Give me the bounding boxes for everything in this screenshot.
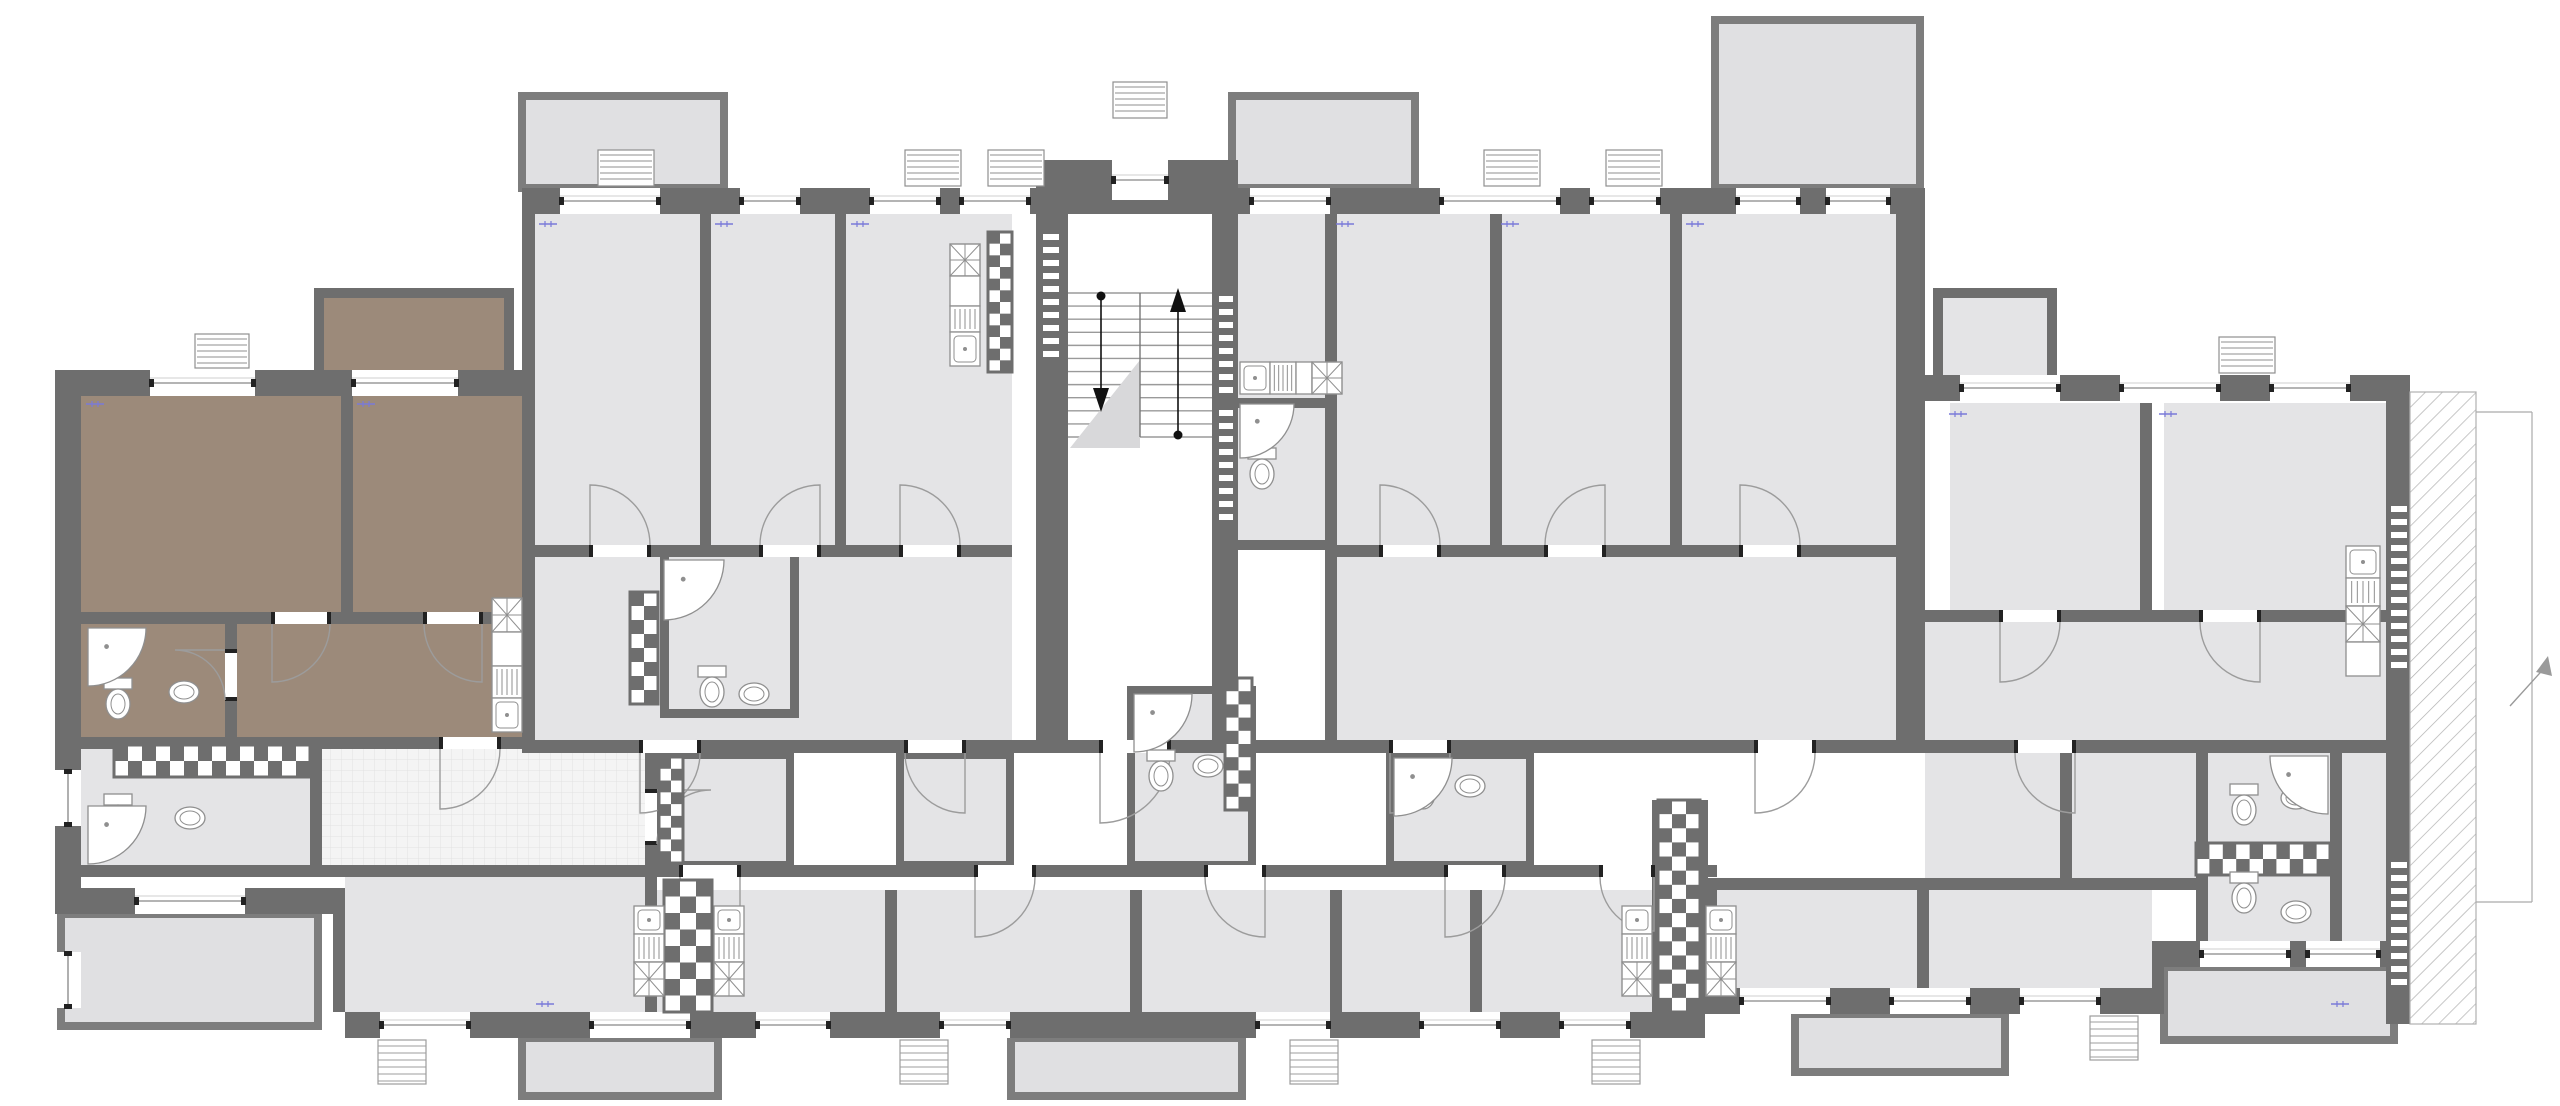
window (1589, 188, 1661, 214)
door-jamb (225, 697, 237, 701)
washbasin (1193, 755, 1223, 777)
wall-segment (1917, 890, 1929, 988)
wall-segment (504, 296, 514, 372)
shaft-cell (696, 946, 712, 963)
kitchen-counter (2346, 642, 2380, 676)
duct-rung (1219, 335, 1233, 341)
room (1717, 890, 1917, 988)
window-jamb (1255, 1021, 1260, 1029)
window (1735, 188, 1801, 214)
shaft-cell (1239, 770, 1253, 783)
window (351, 370, 459, 396)
balcony-bottom-4 (1795, 1014, 2005, 1072)
room (711, 214, 835, 545)
door-jamb (1754, 740, 1758, 753)
window (959, 188, 1031, 214)
shaft-cell (1686, 913, 1700, 927)
wall-segment (310, 749, 322, 877)
door-gap (1205, 865, 1265, 877)
duct-rung (1219, 296, 1233, 302)
shaft-cell (1686, 998, 1700, 1012)
toilet (2230, 784, 2258, 825)
balcony-top-2 (1232, 96, 1415, 188)
shaft-cell (1000, 290, 1012, 302)
wall-segment (2152, 967, 2164, 1014)
shaft-cell (671, 816, 683, 828)
shaft-cell (644, 606, 658, 620)
room-brown-b (353, 396, 522, 612)
door-gap (1740, 545, 1800, 557)
duct-rung (1219, 501, 1233, 507)
window-jamb (1559, 1021, 1564, 1029)
door-gap (424, 612, 482, 624)
wall-segment (314, 296, 324, 372)
window-jamb (869, 197, 874, 205)
wall-segment (1933, 288, 2057, 298)
duct-rung (2391, 506, 2407, 512)
window-jamb (351, 379, 356, 387)
door-jamb (1797, 545, 1801, 557)
shaft-cell (282, 745, 296, 761)
washbasin (739, 683, 769, 705)
wall-segment (1325, 188, 1337, 753)
kitchen-brown (492, 598, 522, 732)
window-jamb (1825, 197, 1830, 205)
window (1959, 375, 2061, 401)
washbasin (2281, 901, 2311, 923)
room (1342, 890, 1470, 1012)
radiator (2219, 337, 2275, 373)
shaft-cell (226, 745, 240, 761)
window (1825, 188, 1891, 214)
shaft-cell (664, 946, 680, 963)
vent-shaft (1225, 678, 1252, 810)
washbasin (175, 807, 205, 829)
balcony-top-3 (1715, 20, 1920, 188)
toilet-tank (104, 794, 132, 805)
door-gap (1390, 740, 1450, 753)
balcony-bottom-3 (1011, 1038, 1242, 1096)
shaft-cell (296, 761, 310, 777)
window-jamb (466, 1021, 471, 1029)
shaft-cell (1000, 314, 1012, 326)
radiator (598, 150, 654, 186)
radiator (988, 150, 1044, 186)
kitchen (2346, 546, 2380, 676)
shaft-cell (1658, 913, 1672, 927)
shaft-cell (1672, 927, 1686, 941)
door-jamb (639, 740, 643, 753)
shaft-cell (142, 745, 156, 761)
window-jamb (1735, 197, 1740, 205)
room (1929, 890, 2152, 988)
door-jamb (497, 737, 501, 749)
shaft-cell (671, 839, 683, 851)
shaft-cell (664, 913, 680, 930)
shaft-cell (1672, 955, 1686, 969)
loggia-rail (2196, 843, 2330, 875)
duct-shaft (1216, 404, 1236, 520)
toilet (104, 678, 132, 719)
kitchen (1622, 906, 1652, 996)
door-gap (1445, 865, 1505, 877)
window (2119, 375, 2221, 401)
door-jamb (1262, 865, 1266, 877)
door-jamb (962, 740, 966, 753)
window-jamb (64, 822, 72, 827)
wall-segment (2047, 296, 2057, 375)
shaft-cell (1658, 998, 1672, 1012)
shaft-cell (2303, 843, 2316, 859)
door-jamb (271, 612, 275, 624)
window-jamb (2305, 950, 2310, 958)
duct-rung (1219, 309, 1233, 315)
duct-rung (1043, 351, 1059, 357)
shaft-cell (659, 851, 671, 863)
shower-drain (681, 577, 686, 582)
wall-segment (333, 888, 345, 1012)
window-jamb (1496, 1021, 1501, 1029)
exterior-steps (378, 1040, 426, 1084)
wall-segment (341, 396, 353, 612)
shaft-cell (2263, 859, 2276, 875)
door-swing (1755, 753, 1815, 813)
duct-rung (2391, 914, 2407, 920)
window-jamb (64, 1004, 72, 1009)
window (755, 1012, 831, 1038)
door-jamb (817, 545, 821, 557)
window (939, 1012, 1011, 1038)
shaft-cell (644, 662, 658, 676)
kitchen-counter (492, 632, 522, 666)
shaft-cell (198, 745, 212, 761)
window-jamb (2096, 997, 2101, 1005)
steps-body (900, 1040, 948, 1084)
shaft-cell (1658, 800, 1672, 814)
shower-drain (1410, 774, 1415, 779)
shaft-cell (1239, 691, 1253, 704)
window-jamb (1966, 997, 1971, 1005)
shaft-cell (644, 690, 658, 704)
door (1754, 740, 1816, 813)
door-jamb (589, 545, 593, 557)
door-jamb (1389, 740, 1393, 753)
door-gap (680, 865, 740, 877)
shaft-cell (114, 745, 128, 761)
floor-plan-svg (0, 0, 2560, 1106)
window (589, 1012, 691, 1038)
kitchen-counter (1296, 362, 1312, 394)
window-jamb (454, 379, 459, 387)
shaft-cell (1672, 899, 1686, 913)
duct-rung (2391, 966, 2407, 972)
door-jamb (647, 545, 651, 557)
window-jamb (251, 379, 256, 387)
door-jamb (1502, 865, 1506, 877)
sink-drain (1635, 918, 1639, 922)
window-jamb (1626, 1021, 1631, 1029)
hall (1925, 622, 2386, 740)
shaft-cell (1239, 744, 1253, 757)
shaft-cell (254, 745, 268, 761)
door-jamb (439, 737, 443, 749)
duct-shaft (2388, 856, 2410, 988)
window-jamb (2376, 950, 2381, 958)
toilet-tank (2230, 872, 2258, 883)
window-jamb (936, 197, 941, 205)
shaft-cell (2317, 859, 2330, 875)
window-jamb (1164, 176, 1169, 184)
adjacent-building-hatch (2410, 392, 2552, 1024)
steps-body (378, 1040, 426, 1084)
wall-segment (1130, 890, 1142, 1012)
shaft-cell (680, 930, 696, 947)
balcony-bottom-left (61, 914, 318, 1026)
door-jamb (2257, 610, 2261, 622)
shaft-cell (1686, 885, 1700, 899)
duct-rung (1219, 361, 1233, 367)
window (1249, 188, 1331, 214)
wall-segment (885, 890, 897, 1012)
window-jamb (559, 197, 564, 205)
shaft-cell (1225, 704, 1239, 717)
balcony-bottom-2 (522, 1038, 718, 1096)
door-gap (645, 790, 657, 844)
door-jamb (957, 545, 961, 557)
window (55, 769, 81, 827)
door-jamb (697, 740, 701, 753)
window (149, 370, 256, 396)
window (55, 951, 81, 1009)
door-gap (440, 737, 500, 749)
door-jamb (1544, 545, 1548, 557)
window (1111, 160, 1169, 200)
shaft-cell (212, 761, 226, 777)
shaft-cell (1686, 857, 1700, 871)
duct-rung (2391, 649, 2407, 655)
door-gap (760, 545, 820, 557)
door-jamb (1812, 740, 1816, 753)
wall-segment (522, 188, 535, 753)
window (1439, 188, 1561, 214)
duct-rung (2391, 584, 2407, 590)
duct-rung (1219, 436, 1233, 442)
window (1559, 1012, 1631, 1038)
washbasin (169, 681, 199, 703)
hall (1337, 557, 1896, 740)
duct-rung (1043, 325, 1059, 331)
sink-drain (727, 918, 731, 922)
exterior-steps (2090, 1016, 2138, 1060)
shaft-cell (2250, 843, 2263, 859)
kitchen (950, 244, 980, 366)
window-jamb (1326, 1021, 1331, 1029)
window-jamb (2269, 384, 2274, 392)
shaft-cell (170, 745, 184, 761)
window-jamb (1326, 197, 1331, 205)
window-jamb (2216, 384, 2221, 392)
shaft-cell (988, 349, 1000, 361)
door-jamb (479, 612, 483, 624)
duct-rung (2391, 636, 2407, 642)
door-jamb (1602, 545, 1606, 557)
door-gap (1545, 545, 1605, 557)
duct-rung (1043, 299, 1059, 305)
duct-rung (2391, 953, 2407, 959)
door-jamb (1437, 545, 1441, 557)
door-jamb (645, 841, 657, 845)
duct-shaft (1216, 290, 1236, 400)
door-gap (975, 865, 1035, 877)
radiator (1484, 150, 1540, 186)
steps-body (1290, 1040, 1338, 1084)
duct-rung (2391, 901, 2407, 907)
door-jamb (2057, 610, 2061, 622)
shaft-cell (696, 880, 712, 897)
duct-rung (2391, 571, 2407, 577)
bathroom (2208, 875, 2330, 941)
door-gap (905, 740, 965, 753)
door-jamb (759, 545, 763, 557)
window-jamb (2286, 950, 2291, 958)
shaft-cell (988, 302, 1000, 314)
door-jamb (423, 612, 427, 624)
shaft-cell (1000, 360, 1012, 372)
window-jamb (826, 1021, 831, 1029)
window-jamb (1889, 997, 1894, 1005)
duct-rung (1219, 387, 1233, 393)
door-jamb (2014, 740, 2018, 753)
window-jamb (379, 1021, 384, 1029)
shaft-cell (1225, 678, 1239, 691)
room (345, 877, 645, 1012)
vent-shaft (659, 757, 683, 863)
door-jamb (2072, 740, 2076, 753)
duct-rung (2391, 532, 2407, 538)
window (1419, 1012, 1501, 1038)
window-jamb (64, 769, 72, 774)
window (379, 1012, 471, 1038)
door-jamb (1444, 865, 1448, 877)
room (535, 214, 700, 545)
shaft-cell (680, 897, 696, 914)
toilet-tank (1147, 750, 1175, 761)
wall-segment (1490, 214, 1502, 545)
steps-body (1592, 1040, 1640, 1084)
wall-segment (1896, 188, 1925, 753)
sink-drain (2361, 560, 2365, 564)
window-jamb (1026, 197, 1031, 205)
wall-segment (1933, 296, 1943, 375)
window-jamb (149, 379, 154, 387)
room-block (900, 755, 1010, 865)
toilet-tank (2230, 784, 2258, 795)
shaft-cell (630, 592, 644, 606)
shaft-cell (1000, 244, 1012, 256)
shaft-cell (2290, 859, 2303, 875)
window-jamb (1826, 997, 1831, 1005)
door-jamb (679, 865, 683, 877)
wall-segment (1238, 540, 1325, 550)
window-jamb (2056, 384, 2061, 392)
shaft-cell (240, 761, 254, 777)
shower-drain (104, 822, 109, 827)
duct-shaft (2388, 500, 2410, 668)
door-gap (1755, 740, 1815, 753)
window (2305, 941, 2381, 967)
shaft-cell (1658, 885, 1672, 899)
duct-bg (1216, 290, 1236, 400)
wall-segment (55, 370, 81, 914)
sink-drain (1719, 918, 1723, 922)
duct-rung (2391, 558, 2407, 564)
radiator (195, 334, 249, 368)
shaft-cell (696, 913, 712, 930)
kitchen-counter (950, 276, 980, 306)
room (1950, 403, 2140, 610)
door-jamb (904, 740, 908, 753)
door-jamb (1032, 865, 1036, 877)
wall-segment (81, 865, 345, 877)
window-jamb (1419, 1021, 1424, 1029)
room (1142, 890, 1330, 1012)
window-jamb (686, 1021, 691, 1029)
door-jamb (737, 865, 741, 877)
shaft-cell (988, 325, 1000, 337)
window-jamb (656, 197, 661, 205)
kitchen (1706, 906, 1736, 996)
window-jamb (2346, 384, 2351, 392)
shaft-cell (1239, 797, 1253, 810)
shaft-cell (1672, 871, 1686, 885)
window (739, 188, 801, 214)
window-jamb (2019, 997, 2024, 1005)
duct-rung (2391, 979, 2407, 985)
shaft-cell (1225, 784, 1239, 797)
window (2269, 375, 2351, 401)
duct-rung (1219, 475, 1233, 481)
duct-rung (1219, 410, 1233, 416)
shaft-cell (156, 761, 170, 777)
wall-segment (2060, 753, 2072, 878)
wall-segment (1330, 890, 1342, 1012)
room (1502, 214, 1670, 545)
door-jamb (899, 545, 903, 557)
shaft-cell (630, 620, 644, 634)
shaft-cell (128, 761, 142, 777)
wall-segment (1705, 878, 2196, 890)
toilet-tank (698, 666, 726, 677)
wall-segment (1925, 610, 2386, 622)
shaft-cell (1686, 970, 1700, 984)
shaft-cell (659, 781, 671, 793)
shaft-cell (1000, 337, 1012, 349)
door-jamb (225, 649, 237, 653)
shower-drain (1150, 710, 1155, 715)
kitchen (1240, 362, 1342, 394)
wall-segment (314, 288, 514, 298)
shaft-cell (2276, 843, 2289, 859)
duct-rung (2391, 597, 2407, 603)
duct-rung (1219, 449, 1233, 455)
door-jamb (1739, 545, 1743, 557)
duct-rung (2391, 927, 2407, 933)
sink-drain (963, 347, 967, 351)
sink-drain (647, 918, 651, 922)
door-gap (1600, 865, 1654, 877)
room-top (1941, 298, 2049, 375)
highlighted-apartment[interactable] (81, 298, 522, 737)
